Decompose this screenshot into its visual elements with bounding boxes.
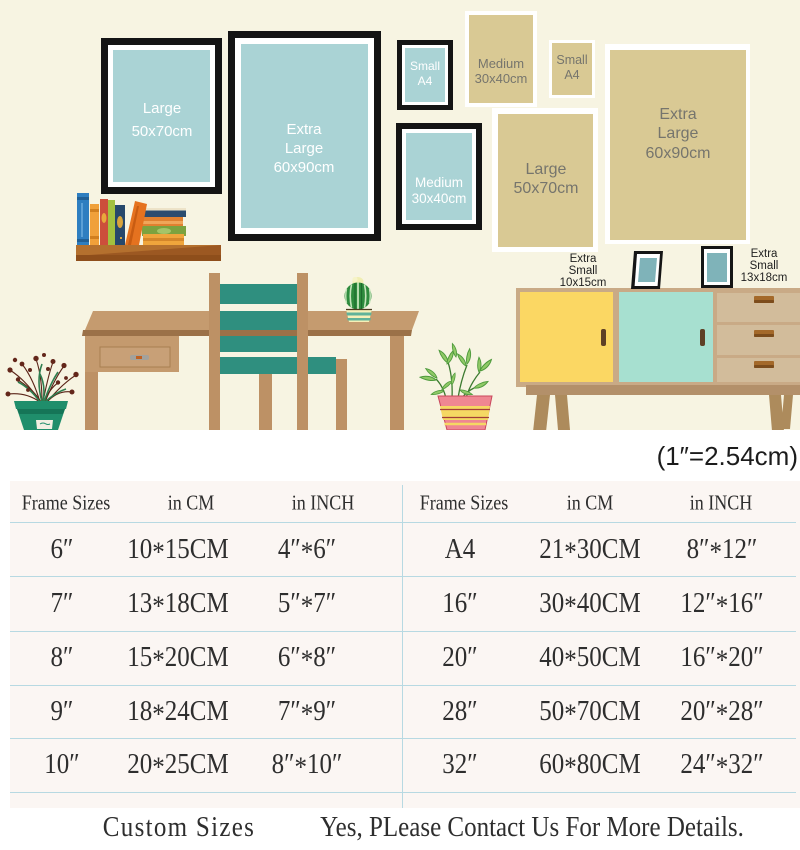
svg-text:60x90cm: 60x90cm bbox=[646, 145, 711, 162]
svg-text:Large: Large bbox=[285, 140, 323, 157]
svg-text:Small: Small bbox=[750, 260, 779, 272]
svg-text:Extra: Extra bbox=[286, 121, 322, 138]
svg-text:Small: Small bbox=[569, 265, 598, 277]
svg-text:60x90cm: 60x90cm bbox=[274, 159, 335, 176]
svg-text:Small: Small bbox=[556, 53, 587, 67]
svg-text:A4: A4 bbox=[564, 68, 579, 82]
svg-text:10x15cm: 10x15cm bbox=[560, 277, 607, 289]
svg-text:30x40cm: 30x40cm bbox=[475, 71, 528, 86]
svg-text:Large: Large bbox=[526, 161, 567, 178]
svg-text:50x70cm: 50x70cm bbox=[132, 123, 193, 140]
svg-text:A4: A4 bbox=[418, 74, 433, 88]
svg-text:Extra: Extra bbox=[570, 253, 597, 265]
svg-text:Large: Large bbox=[658, 125, 699, 142]
svg-text:13x18cm: 13x18cm bbox=[741, 272, 788, 284]
svg-text:50x70cm: 50x70cm bbox=[514, 180, 579, 197]
svg-text:Medium: Medium bbox=[415, 175, 463, 190]
svg-text:Extra: Extra bbox=[659, 106, 696, 123]
svg-text:30x40cm: 30x40cm bbox=[412, 191, 467, 206]
svg-text:Extra: Extra bbox=[751, 248, 778, 260]
svg-text:Medium: Medium bbox=[478, 56, 524, 71]
svg-text:Small: Small bbox=[410, 59, 440, 73]
svg-text:Large: Large bbox=[143, 100, 181, 117]
